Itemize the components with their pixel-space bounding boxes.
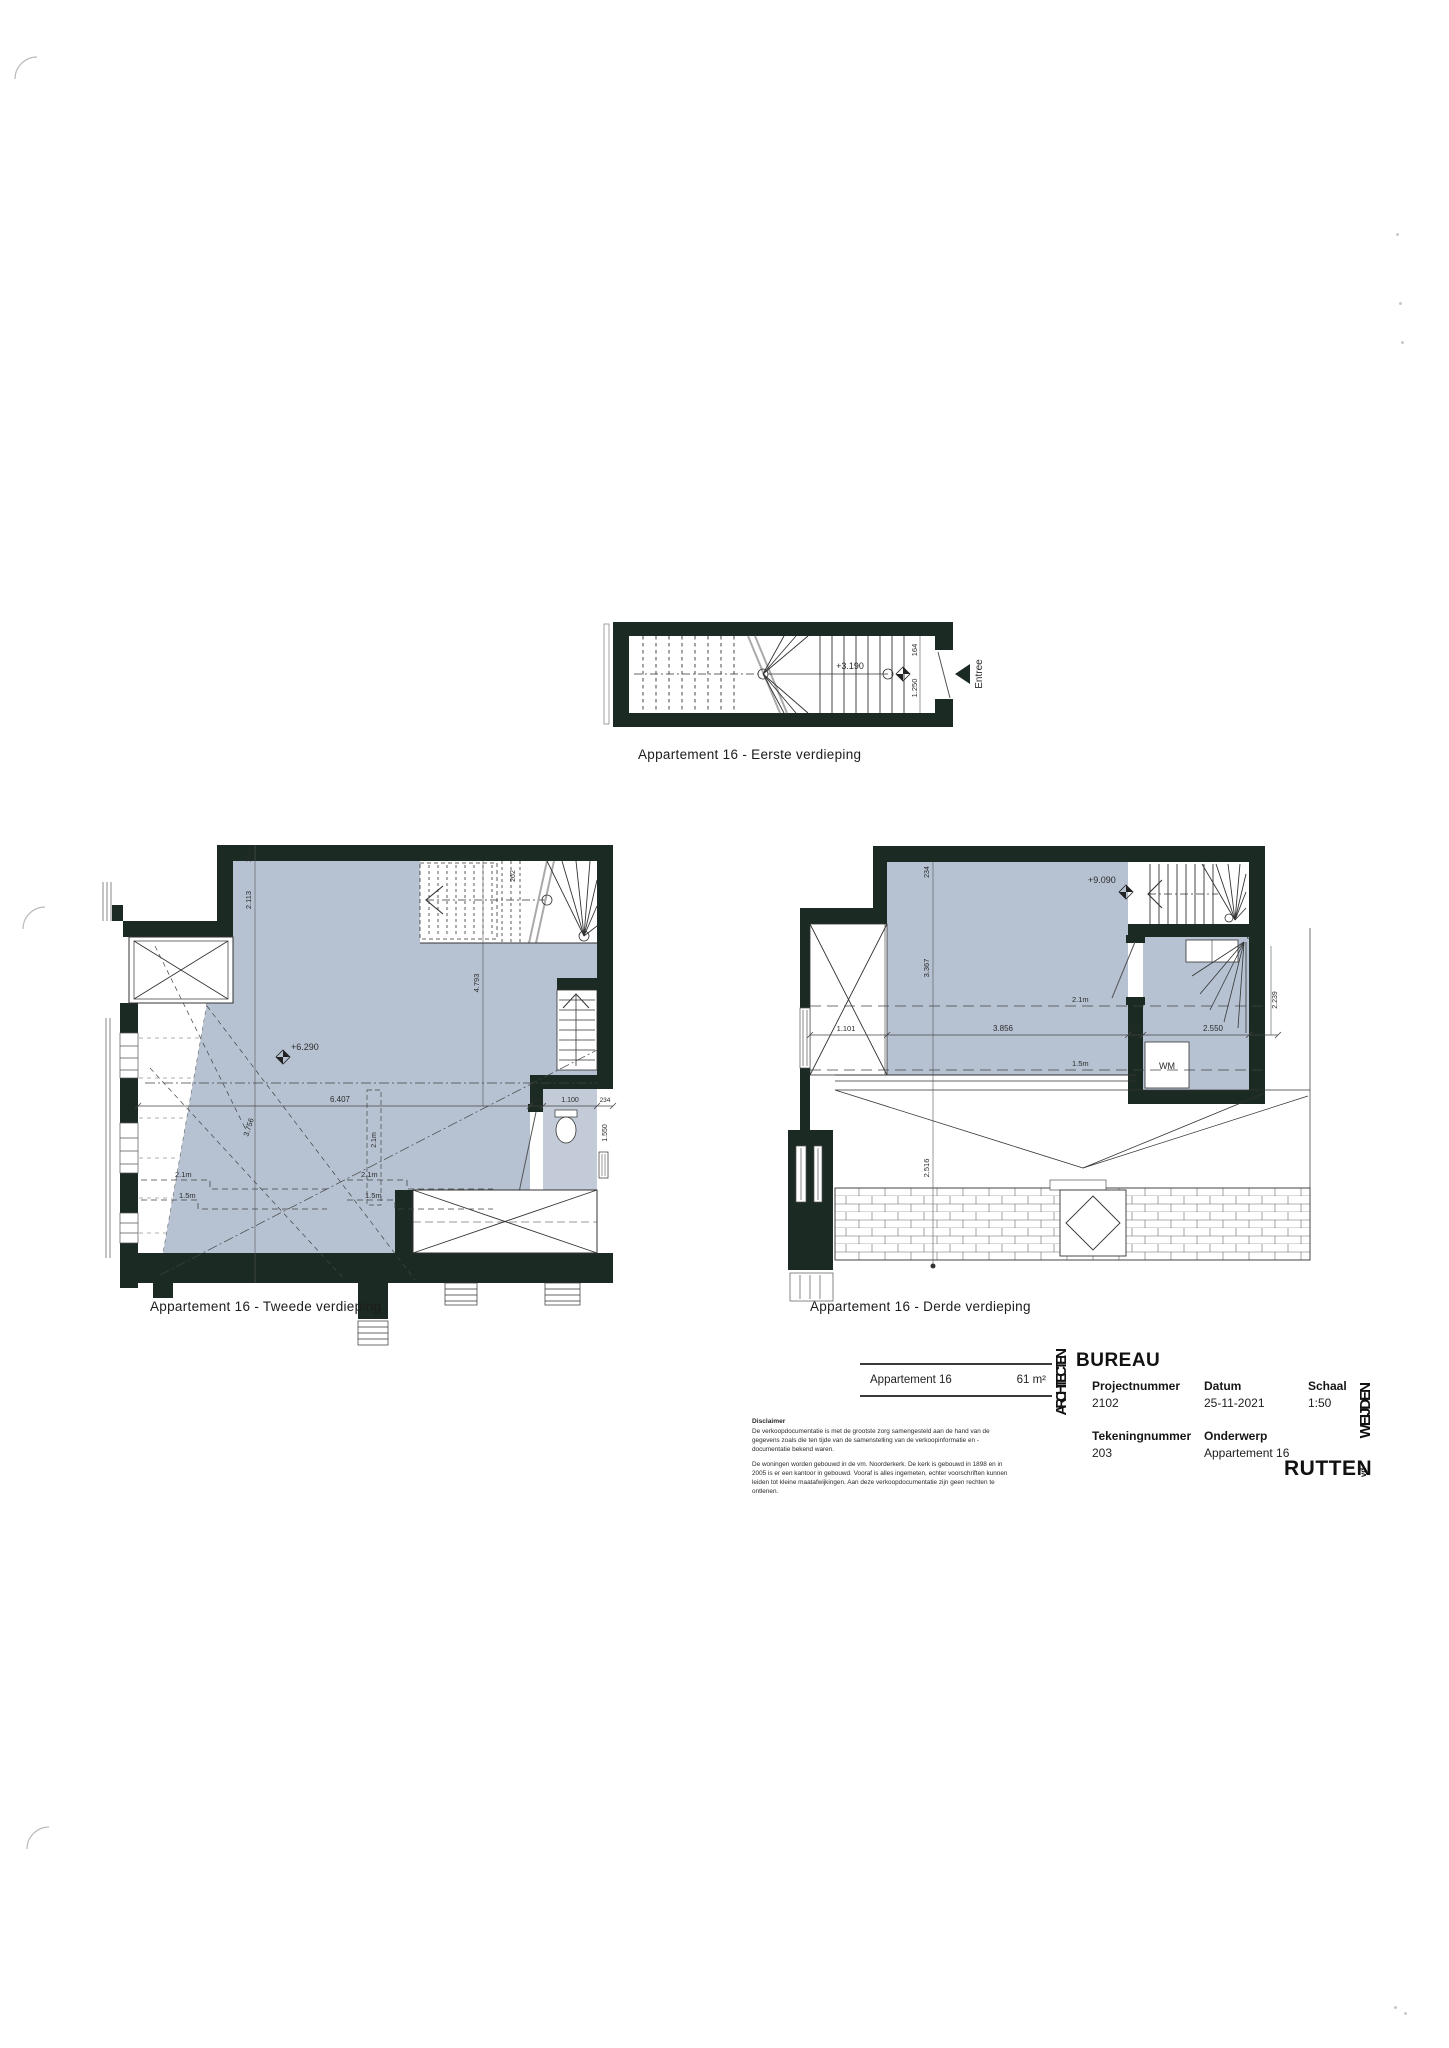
disclaimer-paragraph: De woningen worden gebouwd in de vm. Noo… bbox=[752, 1461, 1014, 1497]
roof-window-zone bbox=[810, 924, 887, 1075]
entree-label: Entree bbox=[974, 659, 985, 689]
schaal-label: Schaal bbox=[1308, 1379, 1347, 1393]
schaal-value: 1:50 bbox=[1308, 1396, 1331, 1410]
floorplan-derde-verdieping: WM a bbox=[788, 828, 1388, 1373]
floorplan-eerste-verdieping: +3.190 164 1.250 Entree bbox=[598, 612, 998, 752]
svg-text:1.5m: 1.5m bbox=[179, 1191, 196, 1200]
radiator bbox=[599, 1152, 608, 1178]
washing-machine-label: WM bbox=[1159, 1061, 1175, 1071]
svg-text:4.793: 4.793 bbox=[472, 974, 481, 993]
brand-architecten: ARCHITECTEN bbox=[1053, 1352, 1070, 1416]
svg-text:2.1m: 2.1m bbox=[371, 1132, 378, 1148]
svg-text:1.5m: 1.5m bbox=[1072, 1059, 1089, 1068]
area-table-row: Appartement 16 61 m² bbox=[860, 1365, 1052, 1395]
floorplan-tweede-verdieping: 262 bbox=[95, 828, 695, 1358]
svg-text:2.1m: 2.1m bbox=[175, 1170, 192, 1179]
svg-text:2.239: 2.239 bbox=[1272, 991, 1279, 1009]
svg-text:2.550: 2.550 bbox=[1203, 1024, 1224, 1033]
scan-speck bbox=[1396, 233, 1399, 236]
scan-speck bbox=[1399, 302, 1402, 305]
corner-label: a bbox=[1247, 934, 1251, 941]
brand-bureau: BUREAU bbox=[1076, 1350, 1160, 1372]
outer-facade-line bbox=[604, 624, 609, 724]
apartment-area: 61 m² bbox=[1017, 1374, 1046, 1386]
dormer-box bbox=[413, 1190, 597, 1253]
scan-speck bbox=[1401, 341, 1404, 344]
svg-text:2.1m: 2.1m bbox=[1072, 995, 1089, 1004]
caption-eerste-verdieping: Appartement 16 - Eerste verdieping bbox=[638, 747, 861, 762]
entree-arrow-icon bbox=[955, 664, 970, 684]
scan-arc-top bbox=[12, 54, 40, 82]
disclaimer: Disclaimer De verkoopdocumentatie is met… bbox=[752, 1417, 1014, 1503]
toilet bbox=[556, 1117, 576, 1143]
svg-text:124: 124 bbox=[1130, 1026, 1141, 1033]
datum-label: Datum bbox=[1204, 1379, 1241, 1393]
datum-value: 25-11-2021 bbox=[1204, 1396, 1265, 1410]
svg-text:124: 124 bbox=[531, 1097, 542, 1104]
projectnummer-label: Projectnummer bbox=[1092, 1379, 1180, 1393]
bottom-window-sills bbox=[358, 1283, 580, 1345]
level-label: +6.290 bbox=[291, 1042, 319, 1052]
area-table: Appartement 16 61 m² bbox=[860, 1363, 1052, 1397]
scan-speck bbox=[1404, 2012, 1407, 2015]
svg-text:1.100: 1.100 bbox=[561, 1097, 579, 1104]
disclaimer-paragraph: De verkoopdocumentatie is met de grootst… bbox=[752, 1428, 1014, 1455]
level-label: +9.090 bbox=[1088, 875, 1116, 885]
svg-text:262: 262 bbox=[246, 850, 253, 862]
brick-parapet bbox=[835, 1180, 1310, 1260]
dim-text: 1.250 bbox=[910, 679, 919, 698]
svg-text:3.367: 3.367 bbox=[922, 959, 931, 978]
apartment-name: Appartement 16 bbox=[870, 1374, 952, 1386]
elevator-shaft bbox=[129, 937, 233, 1003]
tekeningnummer-label: Tekeningnummer bbox=[1092, 1429, 1191, 1443]
svg-text:1.550: 1.550 bbox=[602, 1124, 609, 1142]
svg-text:2.516: 2.516 bbox=[922, 1159, 931, 1178]
onderwerp-label: Onderwerp bbox=[1204, 1429, 1267, 1443]
svg-text:2.113: 2.113 bbox=[244, 891, 253, 909]
svg-text:1.5m: 1.5m bbox=[365, 1191, 382, 1200]
svg-text:2.1m: 2.1m bbox=[361, 1170, 378, 1179]
dim-text: 262 bbox=[510, 870, 517, 882]
caption-tweede-verdieping: Appartement 16 - Tweede verdieping bbox=[150, 1299, 381, 1314]
tekeningnummer-value: 203 bbox=[1092, 1446, 1112, 1460]
dim-text: 164 bbox=[910, 644, 919, 657]
caption-derde-verdieping: Appartement 16 - Derde verdieping bbox=[810, 1299, 1031, 1314]
svg-text:234: 234 bbox=[600, 1097, 611, 1104]
scanned-floorplan-sheet: +3.190 164 1.250 Entree Appartement 16 -… bbox=[0, 0, 1449, 2048]
scan-arc-bottom bbox=[24, 1824, 52, 1852]
svg-text:234: 234 bbox=[924, 866, 931, 878]
scan-arc-middle bbox=[20, 904, 48, 932]
projectnummer-value: 2102 bbox=[1092, 1396, 1119, 1410]
svg-text:1.101: 1.101 bbox=[837, 1024, 856, 1033]
level-label: +3.190 bbox=[836, 661, 864, 671]
stairs-lower bbox=[557, 990, 597, 1070]
svg-text:3.856: 3.856 bbox=[993, 1024, 1014, 1033]
onderwerp-value: Appartement 16 bbox=[1204, 1446, 1289, 1460]
logo-weijden: WEIJDEN bbox=[1357, 1384, 1374, 1438]
scan-speck bbox=[1394, 2006, 1397, 2009]
disclaimer-title: Disclaimer bbox=[752, 1417, 1014, 1426]
stairs-upper bbox=[420, 861, 597, 943]
logo-vd: vd bbox=[1359, 1468, 1368, 1477]
svg-text:6.407: 6.407 bbox=[330, 1095, 351, 1104]
